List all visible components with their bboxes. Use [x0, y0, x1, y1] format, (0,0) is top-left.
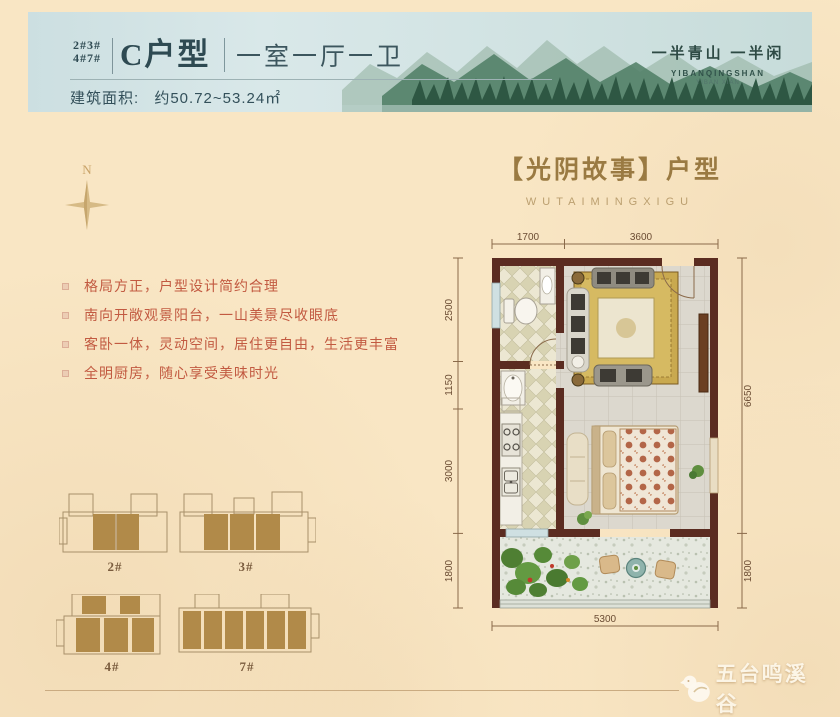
brand-slogan: 一半青山 一半闲: [638, 42, 798, 63]
feature-text: 客卧一体，灵动空间，居住更自由，生活更丰富: [84, 334, 399, 354]
balcony-chair: [599, 555, 620, 574]
dim-left-1150: 1150: [444, 374, 455, 396]
sofa-top: [592, 268, 654, 288]
floorplan: 1700 3600 2500 1150 3000 1800 6650 1800 …: [440, 228, 760, 640]
building-2-shape: [59, 490, 171, 556]
bathroom-wall: [556, 258, 564, 333]
sofa-left: [567, 288, 589, 372]
poster-page: 2#3# 4#7# C户型 一室一厅一卫 建筑面积: 约50.72~53.24㎡…: [0, 0, 840, 717]
building-footprint-4: 4#: [52, 594, 172, 675]
dim-left-2500: 2500: [444, 298, 455, 321]
balcony-glazing: [500, 600, 710, 608]
compass-north-label: N: [55, 162, 119, 178]
kitchen-window: [506, 529, 548, 537]
bedroom-bench: [567, 433, 588, 505]
building-label: 2#: [108, 559, 123, 575]
plan-title: 【光阴故事】户型: [456, 150, 764, 186]
kitchen-wall: [556, 388, 564, 529]
wash-basin: [501, 371, 525, 405]
side-table: [572, 374, 584, 386]
bullet-square-icon: [62, 341, 69, 348]
bathroom-window: [492, 283, 500, 328]
footer-divider-line: [45, 690, 679, 691]
dim-right-1800: 1800: [743, 559, 754, 582]
brand-name-en: YIBANQINGSHAN: [638, 69, 798, 78]
building-footprint-2: 2#: [55, 490, 175, 575]
balcony-table: [627, 559, 646, 578]
toilet: [504, 298, 537, 324]
brand-sub-en: YIBAN XIAN: [638, 80, 798, 86]
feature-item: 格局方正，户型设计简约合理: [62, 276, 399, 296]
dim-top-1700: 1700: [517, 232, 540, 243]
unit-layout-desc: 一室一厅一卫: [236, 37, 404, 73]
building-footprint-7: 7#: [172, 594, 322, 675]
compass: N: [55, 162, 119, 236]
building-3-shape: [176, 486, 316, 556]
plan-title-block: 【光阴故事】户型 WUTAIMINGXIGU: [456, 150, 764, 208]
area-label: 建筑面积:: [70, 90, 139, 107]
header-band: 2#3# 4#7# C户型 一室一厅一卫 建筑面积: 约50.72~53.24㎡…: [28, 12, 812, 112]
balcony-chair: [655, 560, 677, 580]
tv-cabinet: [699, 314, 708, 392]
area-value: 约50.72~53.24㎡: [154, 90, 281, 107]
area-row: 建筑面积: 约50.72~53.24㎡: [70, 87, 281, 108]
feature-text: 南向开敞观景阳台，一山美景尽收眼底: [84, 305, 339, 325]
building-label: 4#: [105, 659, 120, 675]
bed: [592, 426, 678, 514]
building-4-shape: [56, 594, 168, 656]
bullet-square-icon: [62, 370, 69, 377]
feature-text: 格局方正，户型设计简约合理: [84, 276, 279, 296]
plan-subtitle: WUTAIMINGXIGU: [456, 196, 764, 208]
kitchen-sink: [502, 468, 520, 496]
dim-left-1800: 1800: [444, 559, 455, 582]
bullet-square-icon: [62, 312, 69, 319]
water-reflection: [342, 105, 812, 112]
feature-item: 客卧一体，灵动空间，居住更自由，生活更丰富: [62, 334, 399, 354]
building-footprint-3: 3#: [172, 486, 320, 575]
side-table: [572, 272, 584, 284]
pillow: [603, 431, 616, 467]
pillow: [603, 473, 616, 509]
brand-block: 一半青山 一半闲 YIBANQINGSHAN YIBAN XIAN: [638, 42, 798, 86]
bed-headboard: [592, 426, 600, 514]
building-label: 3#: [239, 559, 254, 575]
dim-left-3000: 3000: [444, 459, 455, 482]
unit-type-title: C户型: [120, 29, 210, 74]
dim-bottom-5300: 5300: [594, 614, 617, 625]
feature-text: 全明厨房，随心享受美味时光: [84, 363, 279, 383]
feature-list: 格局方正，户型设计简约合理 南向开敞观景阳台，一山美景尽收眼底 客卧一体，灵动空…: [62, 276, 399, 392]
bathroom-vanity: [540, 268, 555, 304]
header-building-numbers: 2#3# 4#7#: [73, 39, 101, 65]
bird-logo-icon: [680, 670, 716, 706]
dim-right-6650: 6650: [743, 384, 754, 407]
footer-logo-block: 五台鸣溪谷: [680, 666, 830, 710]
feature-item: 南向开敞观景阳台，一山美景尽收眼底: [62, 305, 399, 325]
bullet-square-icon: [62, 283, 69, 290]
header-rule: [70, 79, 552, 80]
building-7-shape: [175, 594, 320, 656]
bedroom-window: [710, 438, 718, 493]
feature-item: 全明厨房，随心享受美味时光: [62, 363, 399, 383]
building-label: 7#: [240, 659, 255, 675]
header-divider-2: [224, 38, 225, 72]
stove: [502, 424, 520, 456]
header-divider-1: [112, 38, 113, 74]
kitchen-counter: [500, 398, 522, 525]
header-building-numbers-line2: 4#7#: [73, 52, 101, 65]
dim-top-3600: 3600: [630, 232, 653, 243]
quilt: [620, 429, 676, 511]
sofa-bottom: [594, 365, 652, 386]
footer-brand-name: 五台鸣溪谷: [716, 658, 830, 717]
compass-star-icon: [55, 178, 119, 234]
